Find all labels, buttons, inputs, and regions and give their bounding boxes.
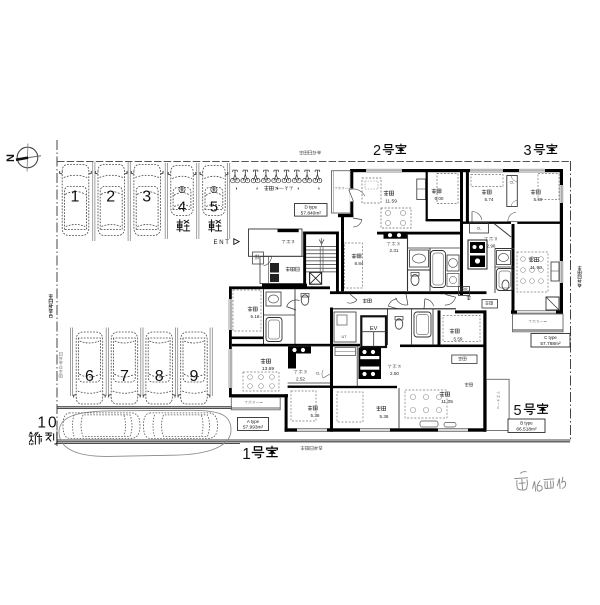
svg-text:5.38: 5.38 — [311, 413, 320, 418]
svg-text:10: 10 — [37, 415, 58, 432]
svg-text:5.18: 5.18 — [251, 314, 260, 319]
svg-text:2: 2 — [106, 189, 115, 206]
svg-text:2.31: 2.31 — [390, 248, 399, 253]
svg-text:2.96: 2.96 — [487, 244, 496, 249]
svg-text:11.59: 11.59 — [385, 199, 397, 205]
svg-text:EV: EV — [370, 326, 378, 332]
svg-text:5.36: 5.36 — [380, 414, 389, 419]
svg-text:D type: D type — [304, 205, 317, 210]
svg-text:2.50: 2.50 — [390, 371, 399, 376]
svg-text:3: 3 — [142, 189, 151, 206]
svg-text:5.74: 5.74 — [485, 197, 494, 202]
svg-text:UT: UT — [341, 335, 347, 339]
svg-text:13.69: 13.69 — [262, 366, 275, 372]
svg-text:1: 1 — [242, 446, 251, 463]
svg-text:11.90: 11.90 — [530, 265, 542, 271]
svg-text:CL: CL — [477, 227, 482, 231]
svg-text:5: 5 — [513, 403, 521, 419]
svg-text:57.993m²: 57.993m² — [243, 425, 264, 431]
svg-text:2: 2 — [373, 143, 381, 159]
svg-text:4: 4 — [178, 199, 186, 216]
svg-text:CL: CL — [510, 181, 515, 185]
svg-text:1: 1 — [71, 189, 80, 206]
svg-text:8: 8 — [155, 368, 164, 385]
svg-text:2.52: 2.52 — [296, 377, 305, 382]
svg-text:57.788m²: 57.788m² — [540, 341, 561, 347]
svg-text:57.840m²: 57.840m² — [301, 210, 322, 216]
svg-text:CL: CL — [316, 372, 321, 376]
svg-text:A type: A type — [247, 419, 260, 424]
svg-text:B type: B type — [520, 421, 533, 426]
svg-text:6.00: 6.00 — [435, 196, 444, 201]
svg-text:66.518m²: 66.518m² — [516, 427, 537, 433]
svg-text:7: 7 — [120, 368, 129, 385]
svg-text:ENT: ENT — [214, 240, 231, 246]
svg-text:3: 3 — [523, 143, 531, 159]
svg-text:5: 5 — [210, 199, 218, 216]
svg-text:5.59: 5.59 — [454, 337, 463, 342]
svg-text:C type: C type — [544, 335, 557, 340]
svg-text:N: N — [5, 154, 17, 162]
svg-text:9: 9 — [189, 368, 198, 385]
svg-text:6: 6 — [85, 368, 94, 385]
